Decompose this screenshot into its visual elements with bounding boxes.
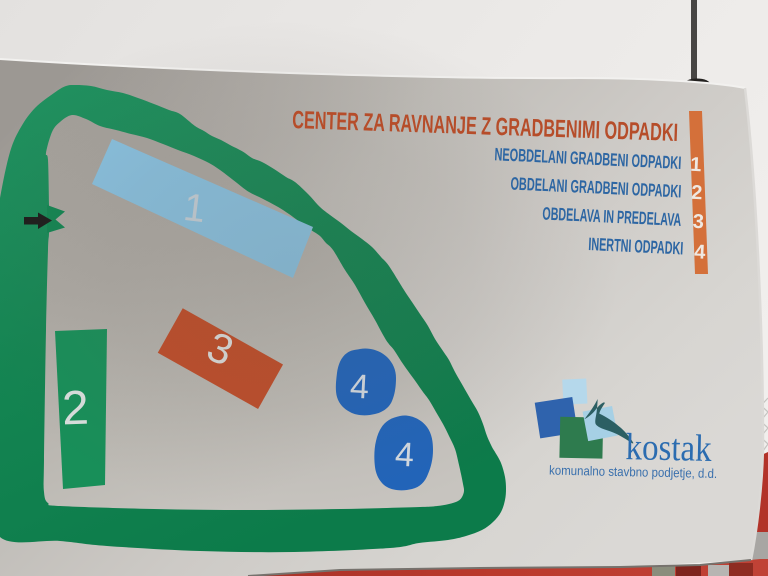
svg-text:2: 2 xyxy=(691,182,703,204)
svg-text:1: 1 xyxy=(690,154,702,176)
svg-text:3: 3 xyxy=(692,211,704,233)
svg-text:4: 4 xyxy=(694,241,707,264)
svg-text:kostak: kostak xyxy=(625,426,712,470)
